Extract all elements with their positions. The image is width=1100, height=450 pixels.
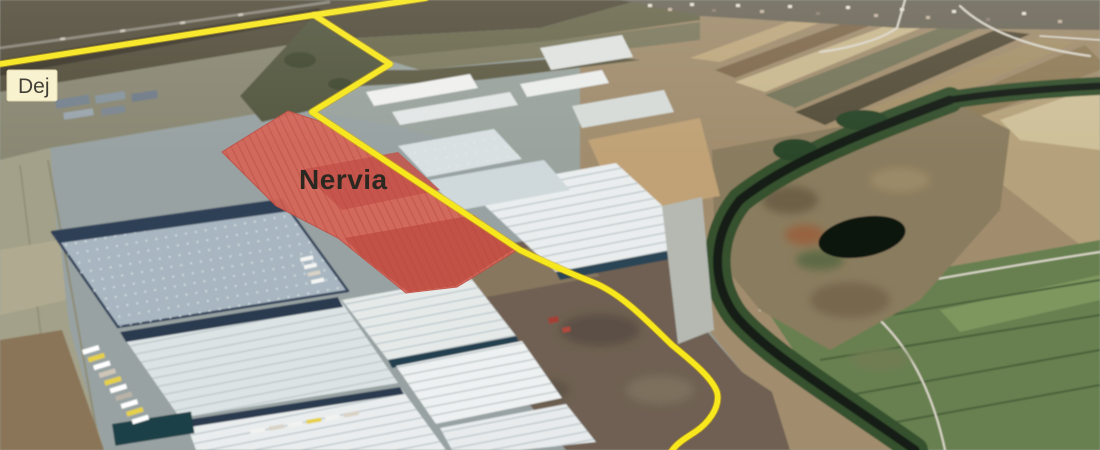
haze-overlay xyxy=(0,0,1100,450)
satellite-map: Dej Nervia xyxy=(0,0,1100,450)
